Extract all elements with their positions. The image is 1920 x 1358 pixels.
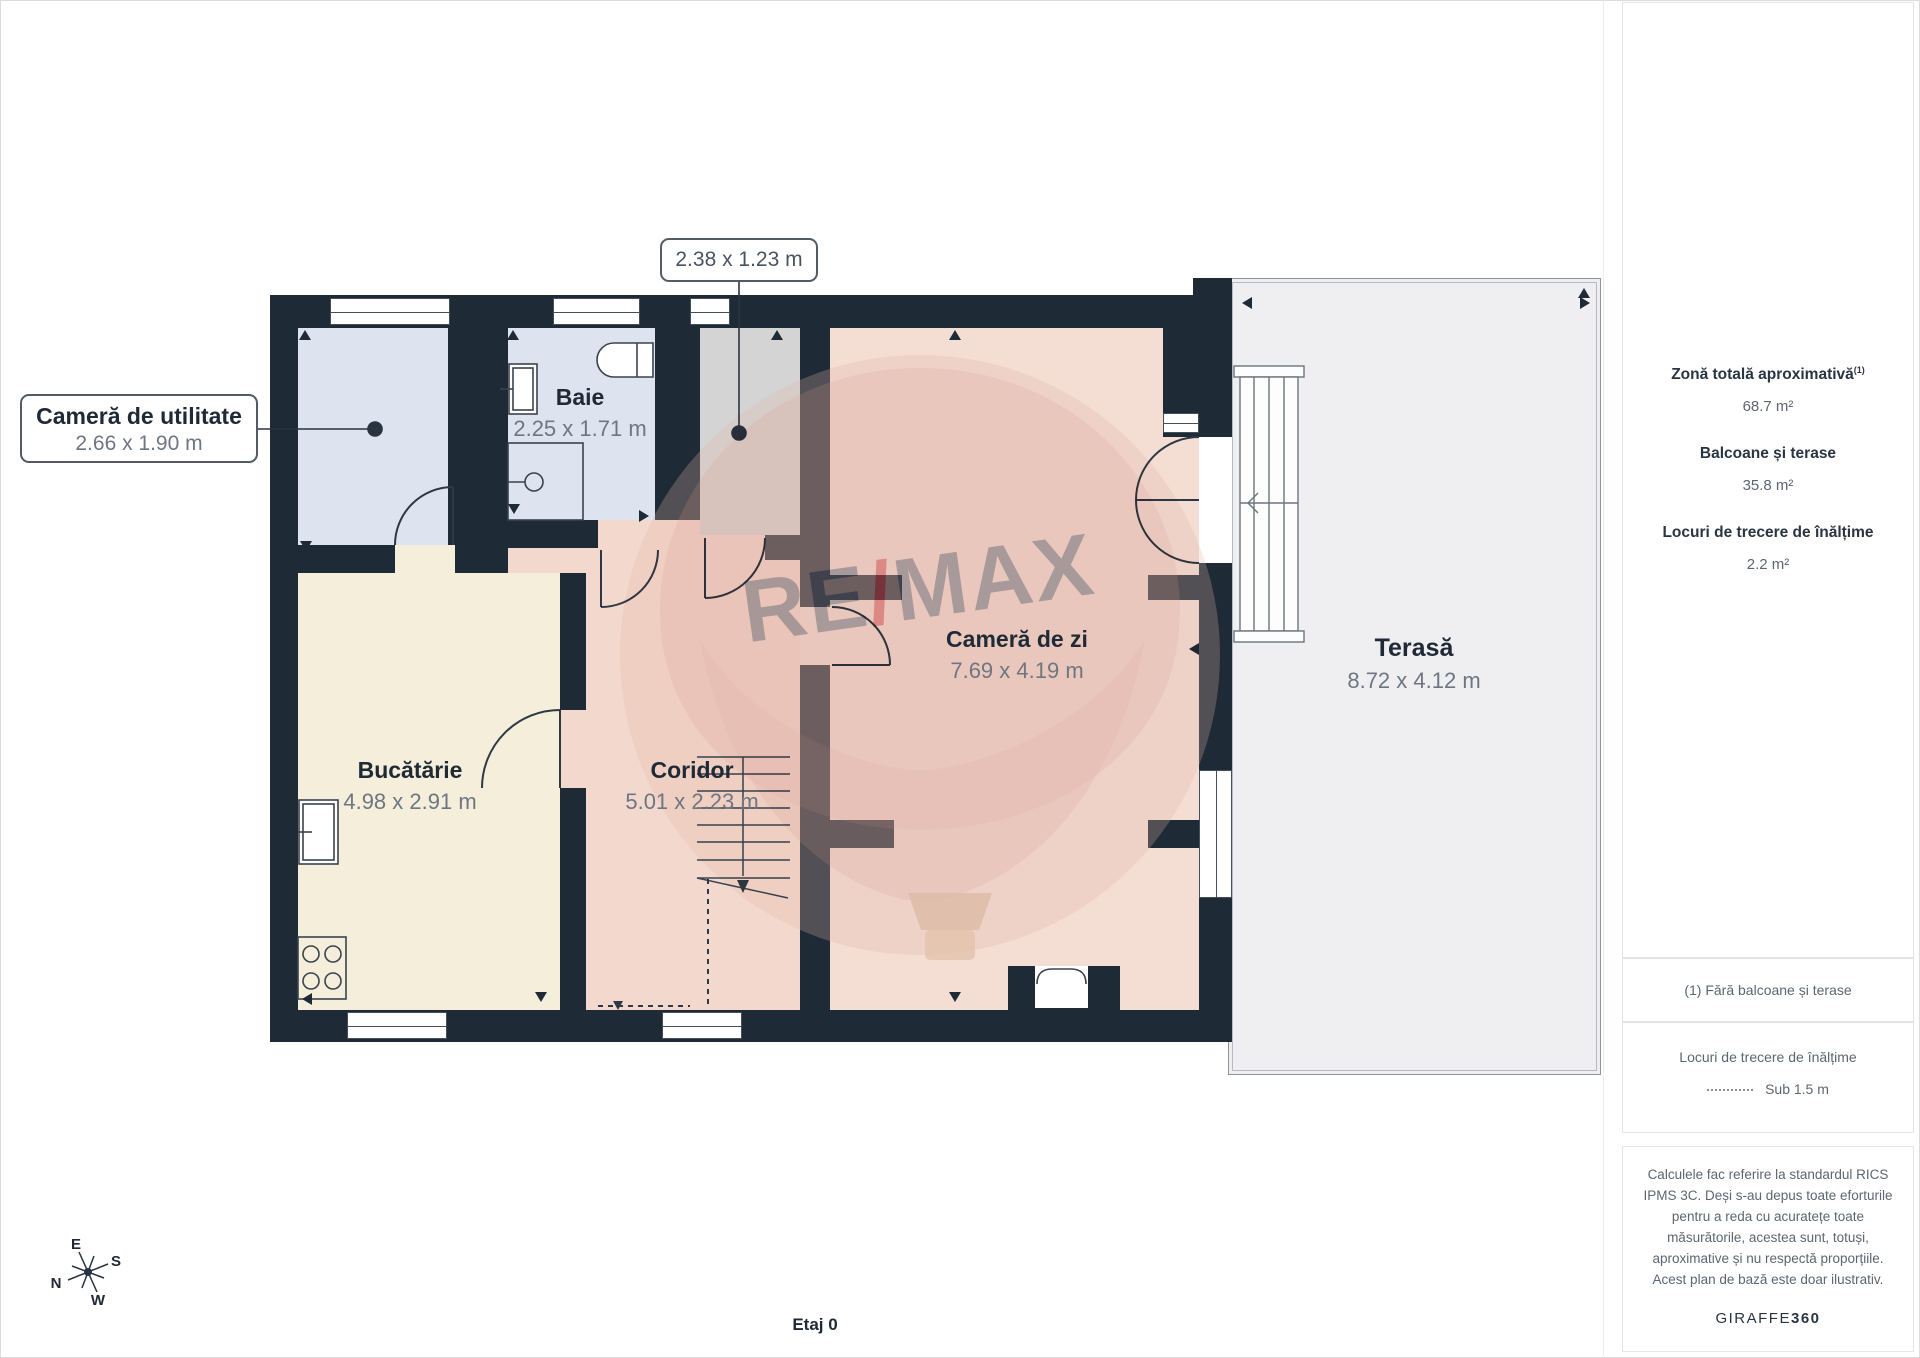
compass-e: E	[71, 1236, 81, 1253]
wall-segment	[1199, 898, 1232, 1010]
room-utilitate	[298, 328, 448, 545]
wall-segment	[800, 665, 830, 1010]
wall-segment	[800, 328, 830, 607]
window	[330, 298, 450, 325]
wall-segment	[765, 535, 800, 560]
callout-utility-room: Cameră de utilitate 2.66 x 1.90 m	[20, 394, 258, 463]
room-stairwell	[700, 328, 800, 535]
wall-segment	[830, 820, 894, 848]
stat-total-area-value: 68.7 m²	[1623, 398, 1913, 415]
stat-low-height-value: 2.2 m²	[1623, 556, 1913, 573]
wall-segment	[270, 295, 298, 1042]
legend-title: Locuri de trecere de înălțime	[1623, 1049, 1913, 1065]
window	[690, 298, 730, 325]
room-label-terasa: Terasă 8.72 x 4.12 m	[1347, 634, 1480, 694]
floor-plan-page: RE/MAX E S N W 2.38 x 1.23 m Cameră de u…	[0, 0, 1920, 1358]
legend-item: Sub 1.5 m	[1765, 1081, 1829, 1097]
window	[662, 1012, 742, 1039]
terrace-door-opening	[1199, 437, 1232, 563]
stat-balconies-value: 35.8 m²	[1623, 477, 1913, 494]
sidebar-footnote: (1) Fără balcoane și terase	[1622, 958, 1914, 1022]
compass-s: S	[111, 1253, 121, 1270]
wall-segment	[1148, 575, 1199, 600]
room-dims-utilitate: 2.66 x 1.90 m	[22, 431, 256, 456]
window	[553, 298, 640, 325]
wall-segment	[1148, 820, 1199, 848]
stat-low-height-label: Locuri de trecere de înălțime	[1623, 524, 1913, 542]
compass-w: W	[91, 1292, 106, 1309]
wall-segment	[455, 545, 508, 573]
room-label-bucatarie: Bucătărie 4.98 x 2.91 m	[343, 757, 476, 815]
window	[1163, 413, 1199, 433]
compass-n: N	[51, 1275, 62, 1292]
window	[1199, 770, 1232, 898]
sidebar-legend: Locuri de trecere de înălțime Sub 1.5 m	[1622, 1022, 1914, 1133]
giraffe360-logo: GIRAFFE360	[1643, 1307, 1893, 1330]
content-divider	[1603, 0, 1604, 1358]
room-label-baie: Baie 2.25 x 1.71 m	[513, 384, 646, 442]
sidebar-stats: Zonă totală aproximativă(1) 68.7 m² Balc…	[1622, 2, 1914, 958]
room-label-utilitate: Cameră de utilitate	[22, 402, 256, 431]
floor-label: Etaj 0	[792, 1315, 837, 1335]
sidebar-disclaimer: Calculele fac referire la standardul RIC…	[1622, 1146, 1914, 1352]
stairwell-dims: 2.38 x 1.23 m	[662, 240, 816, 280]
wall-segment	[830, 575, 902, 600]
fireplace-niche	[1035, 966, 1088, 1008]
wall-segment	[560, 788, 586, 1010]
wall-segment	[448, 328, 508, 520]
room-label-coridor: Coridor 5.01 x 2.23 m	[625, 757, 758, 815]
wall-segment	[1199, 563, 1232, 770]
callout-stairwell-dims: 2.38 x 1.23 m	[660, 238, 818, 282]
wall-segment	[508, 520, 598, 548]
stat-balconies-label: Balcoane și terase	[1623, 445, 1913, 463]
wall-segment	[1199, 295, 1232, 437]
compass-icon: E S N W	[51, 1236, 121, 1309]
wall-segment	[298, 545, 395, 573]
room-label-camera-de-zi: Cameră de zi 7.69 x 4.19 m	[946, 626, 1088, 684]
disclaimer-text: Calculele fac referire la standardul RIC…	[1643, 1165, 1893, 1291]
door-threshold	[395, 545, 455, 573]
stat-total-area-label: Zonă totală aproximativă(1)	[1623, 365, 1913, 384]
dotted-line-icon	[1707, 1089, 1753, 1091]
window	[347, 1012, 447, 1039]
wall-segment	[655, 328, 700, 520]
wall-segment	[560, 573, 586, 710]
